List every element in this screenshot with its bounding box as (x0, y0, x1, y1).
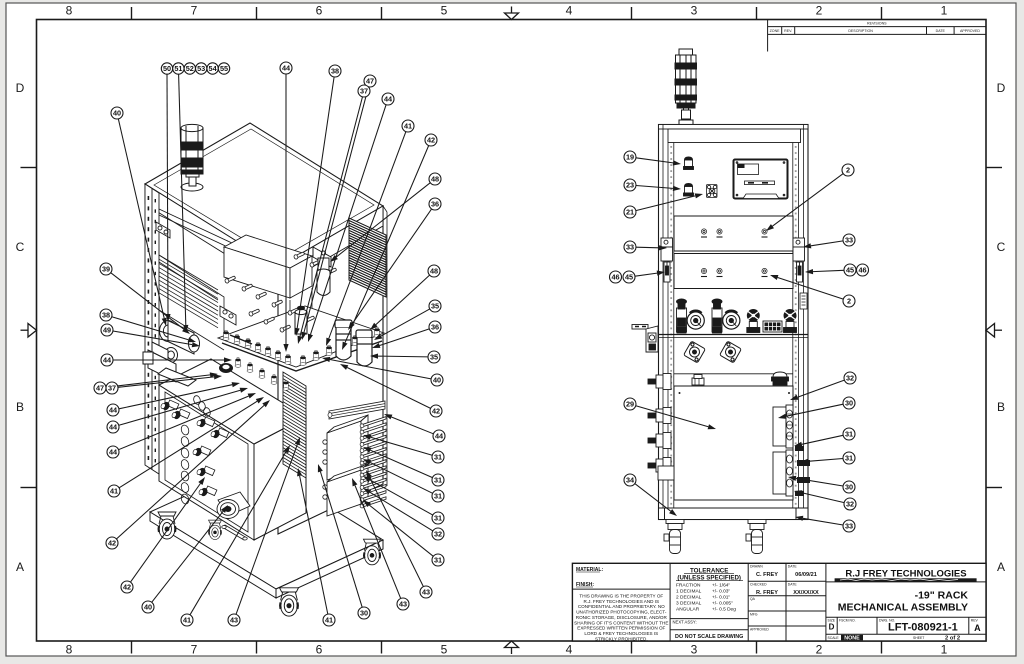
svg-text:B: B (997, 400, 1005, 414)
svg-text:THIS DRAWING IS THE PROPERTY O: THIS DRAWING IS THE PROPERTY OF (579, 594, 663, 599)
svg-text:48: 48 (430, 267, 438, 276)
svg-text:NEXT ASSY:: NEXT ASSY: (673, 620, 697, 625)
svg-text:42: 42 (123, 583, 131, 592)
svg-text:42: 42 (427, 136, 435, 145)
svg-text:43: 43 (399, 600, 407, 609)
svg-text:32: 32 (434, 530, 442, 539)
svg-text:39: 39 (102, 265, 110, 274)
svg-text:2: 2 (846, 166, 850, 175)
svg-text:52: 52 (186, 64, 194, 73)
svg-text:45: 45 (846, 266, 854, 275)
svg-text:APPROVED: APPROVED (960, 29, 980, 33)
svg-text:8: 8 (66, 4, 73, 18)
svg-text:A: A (974, 623, 981, 633)
svg-text:40: 40 (433, 376, 441, 385)
svg-text:51: 51 (174, 64, 182, 73)
svg-text:31: 31 (434, 492, 442, 501)
svg-text:6: 6 (316, 643, 323, 657)
svg-text:1 DECIMAL: 1 DECIMAL (676, 589, 702, 595)
svg-text:41: 41 (110, 487, 118, 496)
svg-text:LORD & FREY TECHNOLOGIES IS: LORD & FREY TECHNOLOGIES IS (584, 631, 658, 636)
svg-text:37: 37 (360, 87, 368, 96)
svg-text:44: 44 (435, 432, 444, 441)
svg-text:1: 1 (941, 643, 948, 657)
svg-text:3 DECIMAL: 3 DECIMAL (676, 601, 702, 607)
svg-text:5: 5 (441, 643, 448, 657)
svg-text:UNATHORIZED PHOTOCOPYING, ELEC: UNATHORIZED PHOTOCOPYING, ELECT- (576, 610, 667, 615)
svg-text:3: 3 (691, 4, 698, 18)
svg-text:21: 21 (626, 208, 634, 217)
svg-text:A: A (997, 560, 1005, 574)
svg-text:41: 41 (325, 616, 333, 625)
svg-text:8: 8 (66, 643, 73, 657)
svg-text:EXPRESSED WRITTEN PERMISSION O: EXPRESSED WRITTEN PERMISSION OF (577, 626, 665, 631)
svg-text:31: 31 (845, 430, 853, 439)
svg-text:C: C (16, 240, 25, 254)
svg-text:31: 31 (434, 453, 442, 462)
svg-text:35: 35 (430, 353, 438, 362)
svg-text:30: 30 (845, 399, 853, 408)
svg-text:29: 29 (626, 400, 634, 409)
svg-text:2: 2 (816, 643, 823, 657)
svg-text:40: 40 (113, 109, 121, 118)
svg-text:42: 42 (432, 407, 440, 416)
svg-text:44: 44 (282, 64, 291, 73)
svg-text:41: 41 (404, 122, 412, 131)
svg-text:19: 19 (626, 153, 634, 162)
svg-text:44: 44 (109, 406, 118, 415)
svg-text:D: D (16, 81, 25, 95)
svg-text:CONFIDENTIAL AND PROPRIETARY.: CONFIDENTIAL AND PROPRIETARY. NO (578, 604, 665, 609)
svg-text:DRAWN: DRAWN (750, 565, 763, 569)
svg-text:4: 4 (566, 4, 573, 18)
svg-text:2 DECIMAL: 2 DECIMAL (676, 595, 702, 601)
svg-text:ZONE: ZONE (770, 29, 781, 33)
svg-text:6: 6 (316, 4, 323, 18)
svg-text:DO NOT SCALE DRAWING: DO NOT SCALE DRAWING (675, 634, 743, 640)
svg-text:33: 33 (626, 243, 634, 252)
svg-text:54: 54 (209, 64, 218, 73)
svg-text:SHEET: SHEET (913, 636, 924, 640)
svg-text:48: 48 (431, 175, 439, 184)
svg-text:R.J FREY TECHNOLOGIES: R.J FREY TECHNOLOGIES (845, 569, 966, 580)
svg-text:REVISIONS: REVISIONS (867, 22, 887, 26)
svg-text:+/- 0.005": +/- 0.005" (712, 601, 733, 607)
svg-text:1: 1 (941, 4, 948, 18)
svg-text:MFG: MFG (750, 612, 758, 616)
svg-text:DATE: DATE (788, 583, 798, 587)
svg-text:33: 33 (845, 522, 853, 531)
svg-text:DATE: DATE (788, 565, 798, 569)
svg-text:44: 44 (103, 356, 112, 365)
svg-text:49: 49 (103, 326, 111, 335)
svg-text:XX/XX/XX: XX/XX/XX (793, 590, 819, 596)
svg-text:C: C (997, 240, 1006, 254)
svg-text:CHECKED: CHECKED (750, 583, 767, 587)
svg-text:+/- 1/64": +/- 1/64" (712, 583, 730, 589)
svg-text:SCALE: SCALE (828, 636, 840, 640)
svg-text:55: 55 (220, 64, 228, 73)
svg-text:2: 2 (847, 297, 851, 306)
svg-text:47: 47 (366, 77, 374, 86)
svg-text:38: 38 (331, 67, 339, 76)
svg-text:NONE: NONE (844, 636, 860, 642)
svg-text:RONIC STORAGE, DISCLOSURE, AND: RONIC STORAGE, DISCLOSURE, AND/OR (576, 615, 668, 620)
svg-text:06/09/21: 06/09/21 (795, 572, 817, 578)
svg-text:40: 40 (144, 603, 152, 612)
svg-text:SHARING OF IT'S CONTENT WITHOU: SHARING OF IT'S CONTENT WITHOUT THE (574, 620, 668, 625)
svg-text:FSCM NO.: FSCM NO. (839, 619, 856, 623)
svg-text:LFT-080921-1: LFT-080921-1 (888, 622, 958, 634)
svg-text:50: 50 (163, 64, 171, 73)
svg-text:30: 30 (360, 609, 368, 618)
svg-text:23: 23 (626, 181, 634, 190)
svg-text:4: 4 (566, 643, 573, 657)
svg-text:+/- 0.03": +/- 0.03" (712, 589, 730, 595)
svg-text:37: 37 (108, 384, 116, 393)
svg-text:30: 30 (845, 483, 853, 492)
svg-text:D: D (829, 623, 835, 632)
svg-text:31: 31 (434, 476, 442, 485)
svg-text:-19" RACK: -19" RACK (915, 590, 969, 602)
svg-text:36: 36 (431, 323, 439, 332)
svg-text:3: 3 (691, 643, 698, 657)
svg-text:41: 41 (183, 616, 191, 625)
svg-text:C. FREY: C. FREY (756, 572, 778, 578)
svg-text:42: 42 (108, 539, 116, 548)
svg-text:45: 45 (625, 273, 633, 282)
svg-text:2 of 2: 2 of 2 (945, 636, 960, 642)
svg-text:QA: QA (750, 597, 756, 601)
svg-text:B: B (16, 400, 24, 414)
svg-text:7: 7 (191, 4, 198, 18)
svg-text:5: 5 (441, 4, 448, 18)
svg-text:43: 43 (230, 616, 238, 625)
svg-text:47: 47 (96, 384, 104, 393)
svg-text:44: 44 (109, 448, 118, 457)
svg-text:32: 32 (846, 500, 854, 509)
svg-text:STRICKLY PROHIBITED.: STRICKLY PROHIBITED. (595, 636, 648, 641)
svg-text:34: 34 (626, 476, 635, 485)
svg-text:33: 33 (845, 236, 853, 245)
svg-text:7: 7 (191, 643, 198, 657)
svg-text:ANGULAR: ANGULAR (676, 607, 700, 613)
svg-text:R.J. FREY TECHNOLOGIES AND IS: R.J. FREY TECHNOLOGIES AND IS (583, 599, 659, 604)
svg-text:36: 36 (431, 200, 439, 209)
svg-text:+/- 0.5 Deg: +/- 0.5 Deg (712, 607, 736, 613)
svg-text:R. FREY: R. FREY (756, 590, 778, 596)
svg-text:53: 53 (197, 64, 205, 73)
svg-text:44: 44 (384, 95, 393, 104)
svg-text:2: 2 (816, 4, 823, 18)
svg-text:+/- 0.01": +/- 0.01" (712, 595, 730, 601)
svg-text:MECHANICAL ASSEMBLY: MECHANICAL ASSEMBLY (838, 602, 968, 614)
svg-text:46: 46 (858, 266, 866, 275)
svg-text:46: 46 (611, 273, 619, 282)
svg-text:DESCRIPTION: DESCRIPTION (848, 29, 873, 33)
svg-text:REV.: REV. (784, 29, 792, 33)
svg-text:35: 35 (431, 302, 439, 311)
svg-text:43: 43 (422, 588, 430, 597)
svg-text:31: 31 (434, 514, 442, 523)
svg-text:FRACTION: FRACTION (676, 583, 701, 589)
svg-text:44: 44 (109, 423, 118, 432)
svg-text:32: 32 (846, 374, 854, 383)
svg-text:APPROVED: APPROVED (750, 627, 769, 631)
svg-text:A: A (16, 560, 24, 574)
svg-text:D: D (997, 81, 1006, 95)
svg-text:DATE: DATE (936, 29, 946, 33)
svg-text:38: 38 (102, 311, 110, 320)
svg-text:31: 31 (434, 556, 442, 565)
svg-text:31: 31 (845, 454, 853, 463)
